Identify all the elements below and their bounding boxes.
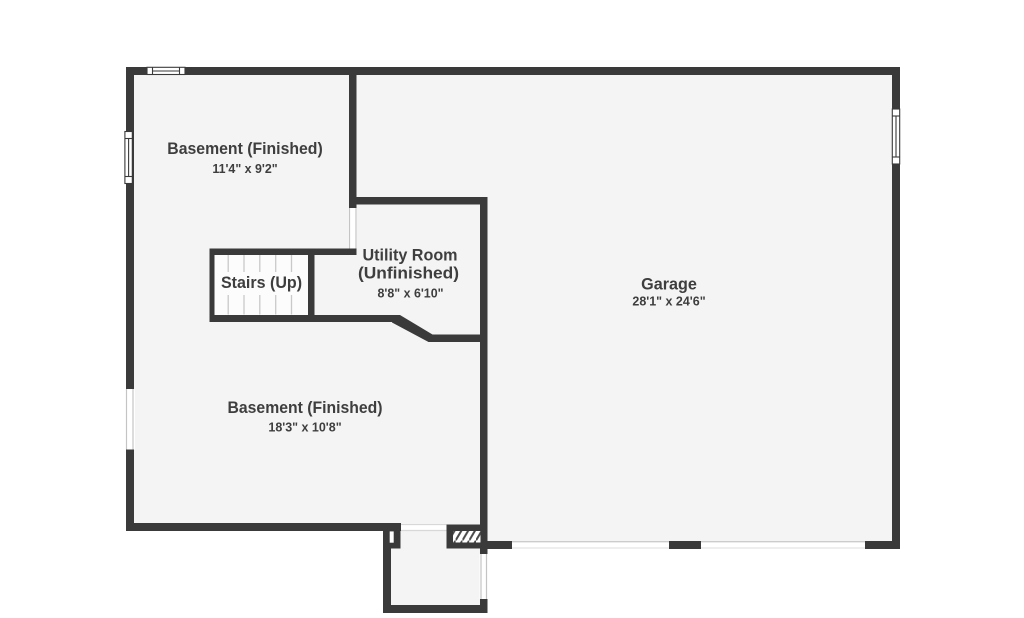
svg-text:18'3" x 10'8": 18'3" x 10'8" <box>268 419 341 434</box>
svg-text:Garage: Garage <box>641 274 697 293</box>
svg-text:Stairs (Up): Stairs (Up) <box>221 273 302 293</box>
svg-text:11'4" x 9'2": 11'4" x 9'2" <box>212 161 277 176</box>
svg-text:8'8" x 6'10": 8'8" x 6'10" <box>378 285 444 300</box>
svg-text:28'1" x 24'6": 28'1" x 24'6" <box>632 293 705 308</box>
svg-text:Basement (Finished): Basement (Finished) <box>167 140 322 159</box>
svg-text:Basement (Finished): Basement (Finished) <box>228 399 383 418</box>
svg-text:(Unfinished): (Unfinished) <box>358 263 459 283</box>
